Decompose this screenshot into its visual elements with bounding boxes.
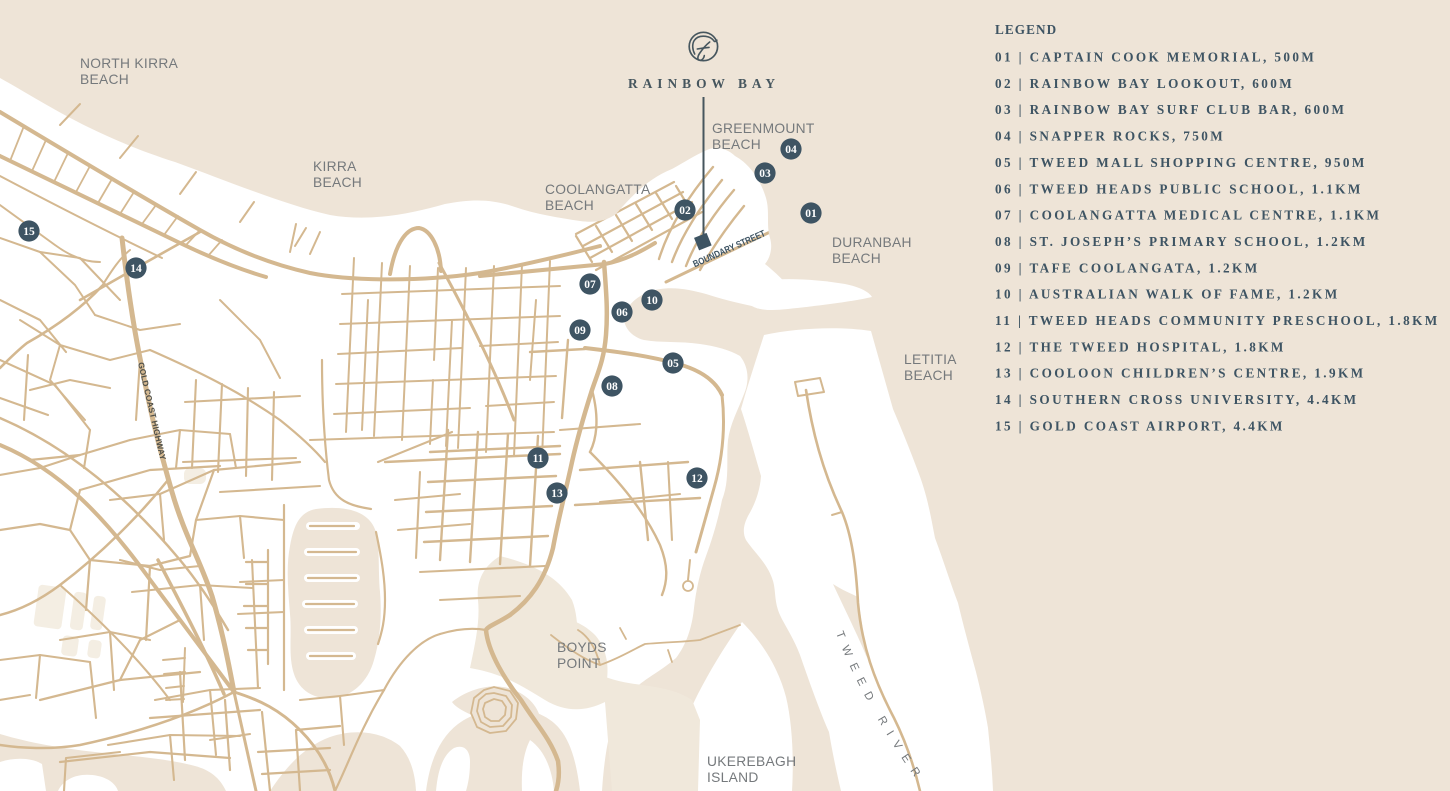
svg-text:LEGEND: LEGEND (995, 22, 1057, 37)
svg-text:COOLANGATTA: COOLANGATTA (545, 182, 651, 197)
svg-text:RAINBOW BAY: RAINBOW BAY (628, 76, 780, 91)
svg-text:07 | COOLANGATTA MEDICAL CENTR: 07 | COOLANGATTA MEDICAL CENTRE, 1.1KM (995, 208, 1381, 223)
svg-text:05 | TWEED MALL SHOPPING CENTR: 05 | TWEED MALL SHOPPING CENTRE, 950M (995, 155, 1367, 170)
svg-text:10 | AUSTRALIAN WALK OF FAME,: 10 | AUSTRALIAN WALK OF FAME, 1.2KM (995, 287, 1340, 302)
svg-text:POINT: POINT (557, 656, 601, 671)
svg-text:15: 15 (23, 226, 35, 238)
svg-text:UKEREBAGH: UKEREBAGH (707, 754, 796, 769)
svg-text:04: 04 (785, 144, 797, 156)
svg-text:01: 01 (805, 208, 817, 220)
svg-text:BEACH: BEACH (545, 198, 594, 213)
svg-text:06 | TWEED HEADS PUBLIC SCHOOL: 06 | TWEED HEADS PUBLIC SCHOOL, 1.1KM (995, 181, 1363, 196)
svg-text:12 | THE TWEED HOSPITAL, 1.8KM: 12 | THE TWEED HOSPITAL, 1.8KM (995, 339, 1286, 354)
svg-text:07: 07 (584, 279, 596, 291)
svg-text:01 | CAPTAIN COOK MEMORIAL, 50: 01 | CAPTAIN COOK MEMORIAL, 500M (995, 50, 1316, 65)
svg-text:09 | TAFE COOLANGATA, 1.2KM: 09 | TAFE COOLANGATA, 1.2KM (995, 260, 1260, 275)
svg-text:10: 10 (646, 295, 658, 307)
svg-text:13: 13 (551, 488, 563, 500)
svg-text:ISLAND: ISLAND (707, 770, 759, 785)
svg-text:02: 02 (679, 205, 691, 217)
svg-text:BEACH: BEACH (904, 368, 953, 383)
svg-text:BEACH: BEACH (80, 72, 129, 87)
svg-text:03: 03 (759, 168, 771, 180)
svg-text:GREENMOUNT: GREENMOUNT (712, 121, 815, 136)
svg-text:15 | GOLD COAST AIRPORT, 4.4KM: 15 | GOLD COAST AIRPORT, 4.4KM (995, 418, 1285, 433)
svg-text:04 | SNAPPER ROCKS, 750M: 04 | SNAPPER ROCKS, 750M (995, 129, 1225, 144)
svg-text:09: 09 (574, 325, 586, 337)
svg-text:06: 06 (616, 307, 628, 319)
svg-text:BEACH: BEACH (832, 251, 881, 266)
svg-text:11 | TWEED HEADS COMMUNITY PRE: 11 | TWEED HEADS COMMUNITY PRESCHOOL, 1.… (995, 313, 1440, 328)
svg-text:05: 05 (667, 358, 679, 370)
svg-text:LETITIA: LETITIA (904, 352, 957, 367)
svg-text:BEACH: BEACH (313, 175, 362, 190)
svg-text:08: 08 (606, 381, 618, 393)
svg-text:DURANBAH: DURANBAH (832, 235, 912, 250)
svg-text:14 | SOUTHERN CROSS UNIVERSITY: 14 | SOUTHERN CROSS UNIVERSITY, 4.4KM (995, 392, 1358, 407)
svg-text:11: 11 (533, 453, 544, 465)
svg-text:KIRRA: KIRRA (313, 159, 357, 174)
svg-text:BEACH: BEACH (712, 137, 761, 152)
svg-text:14: 14 (130, 263, 142, 275)
svg-text:NORTH KIRRA: NORTH KIRRA (80, 56, 179, 71)
svg-text:08 | ST. JOSEPH’S PRIMARY SCHO: 08 | ST. JOSEPH’S PRIMARY SCHOOL, 1.2KM (995, 234, 1368, 249)
svg-text:03 | RAINBOW BAY SURF CLUB BAR: 03 | RAINBOW BAY SURF CLUB BAR, 600M (995, 102, 1346, 117)
svg-text:02 | RAINBOW BAY LOOKOUT, 600M: 02 | RAINBOW BAY LOOKOUT, 600M (995, 76, 1294, 91)
svg-text:BOYDS: BOYDS (557, 640, 607, 655)
svg-text:12: 12 (691, 473, 703, 485)
svg-text:13 | COOLOON CHILDREN’S CENTRE: 13 | COOLOON CHILDREN’S CENTRE, 1.9KM (995, 366, 1366, 381)
